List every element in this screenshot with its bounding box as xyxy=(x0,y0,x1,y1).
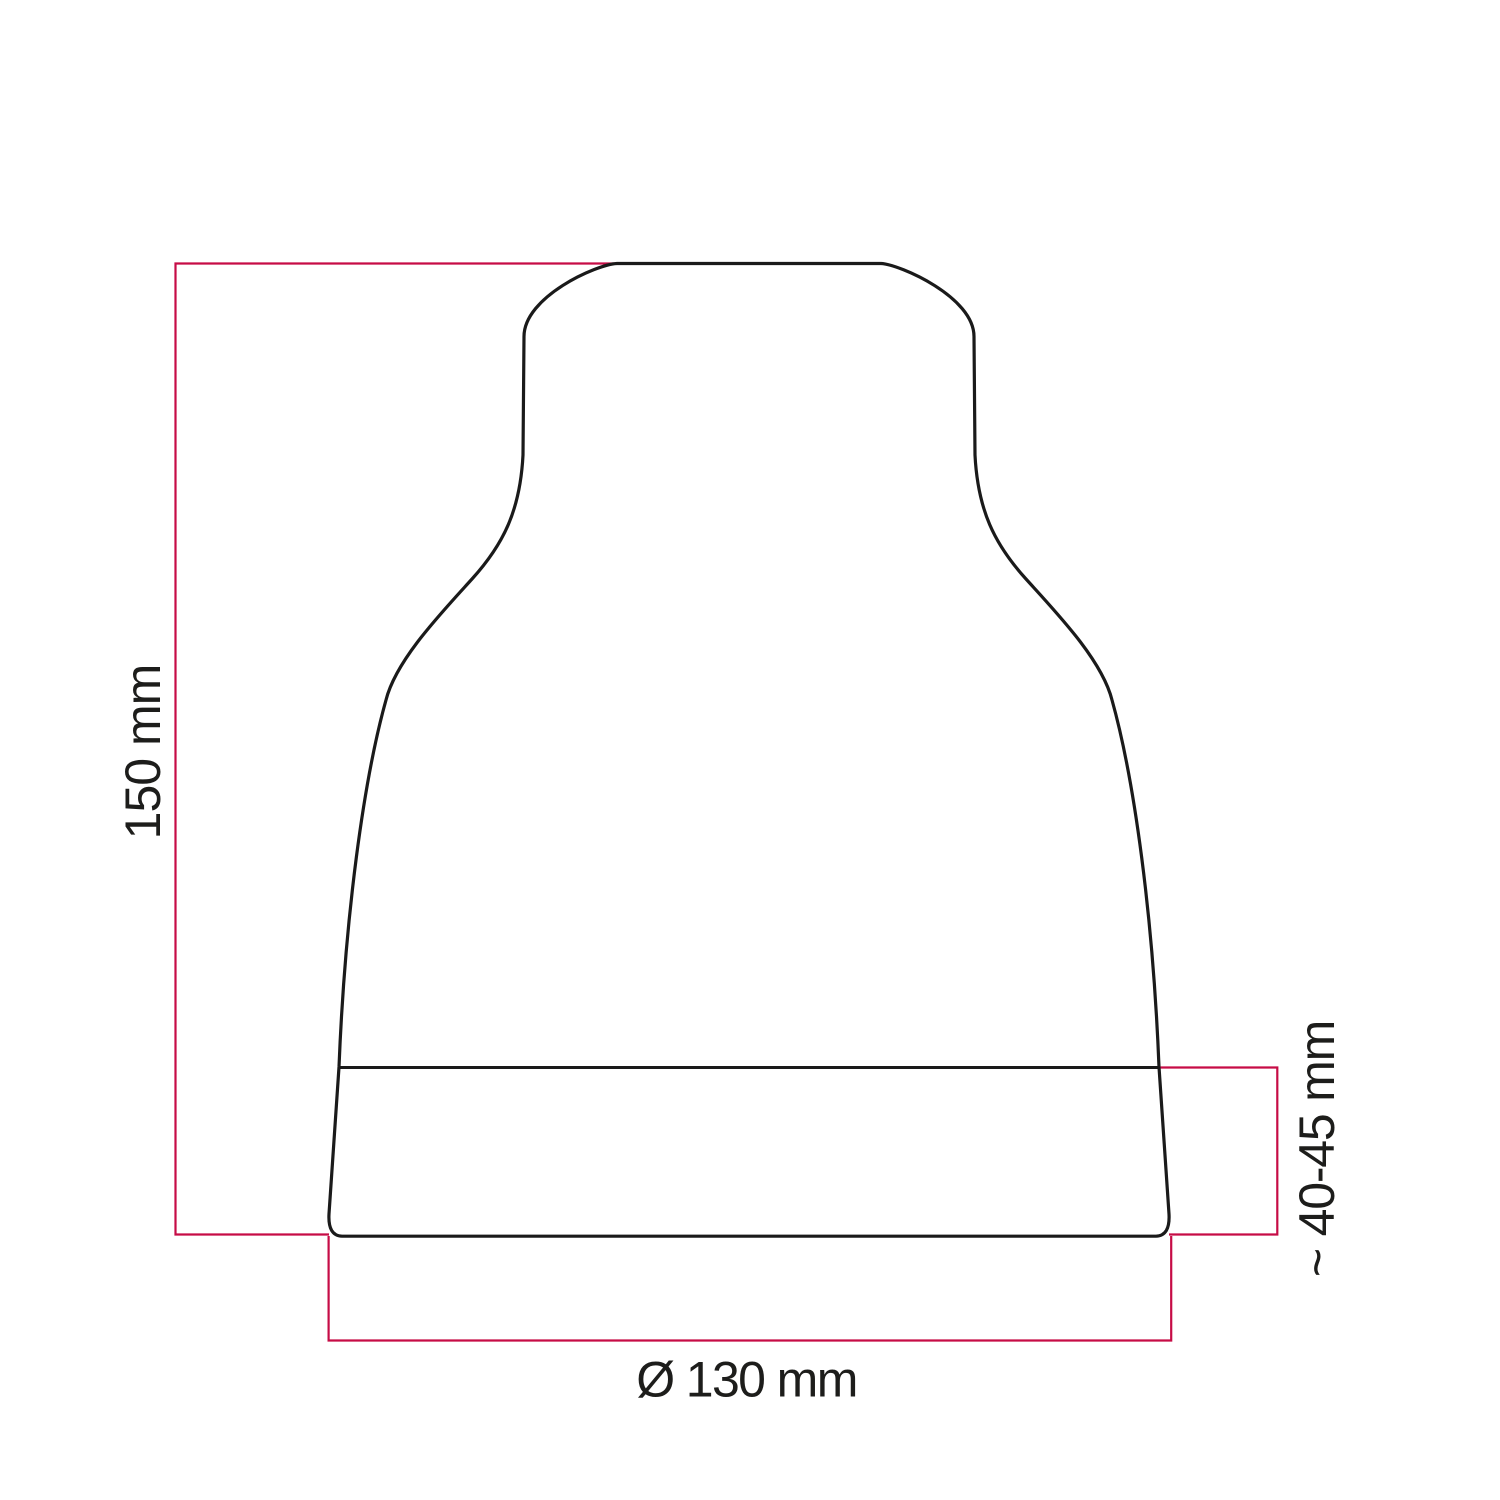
svg-text:~ 40-45 mm: ~ 40-45 mm xyxy=(1289,1021,1345,1277)
svg-text:Ø 130 mm: Ø 130 mm xyxy=(636,1352,857,1408)
svg-text:150 mm: 150 mm xyxy=(115,665,171,840)
